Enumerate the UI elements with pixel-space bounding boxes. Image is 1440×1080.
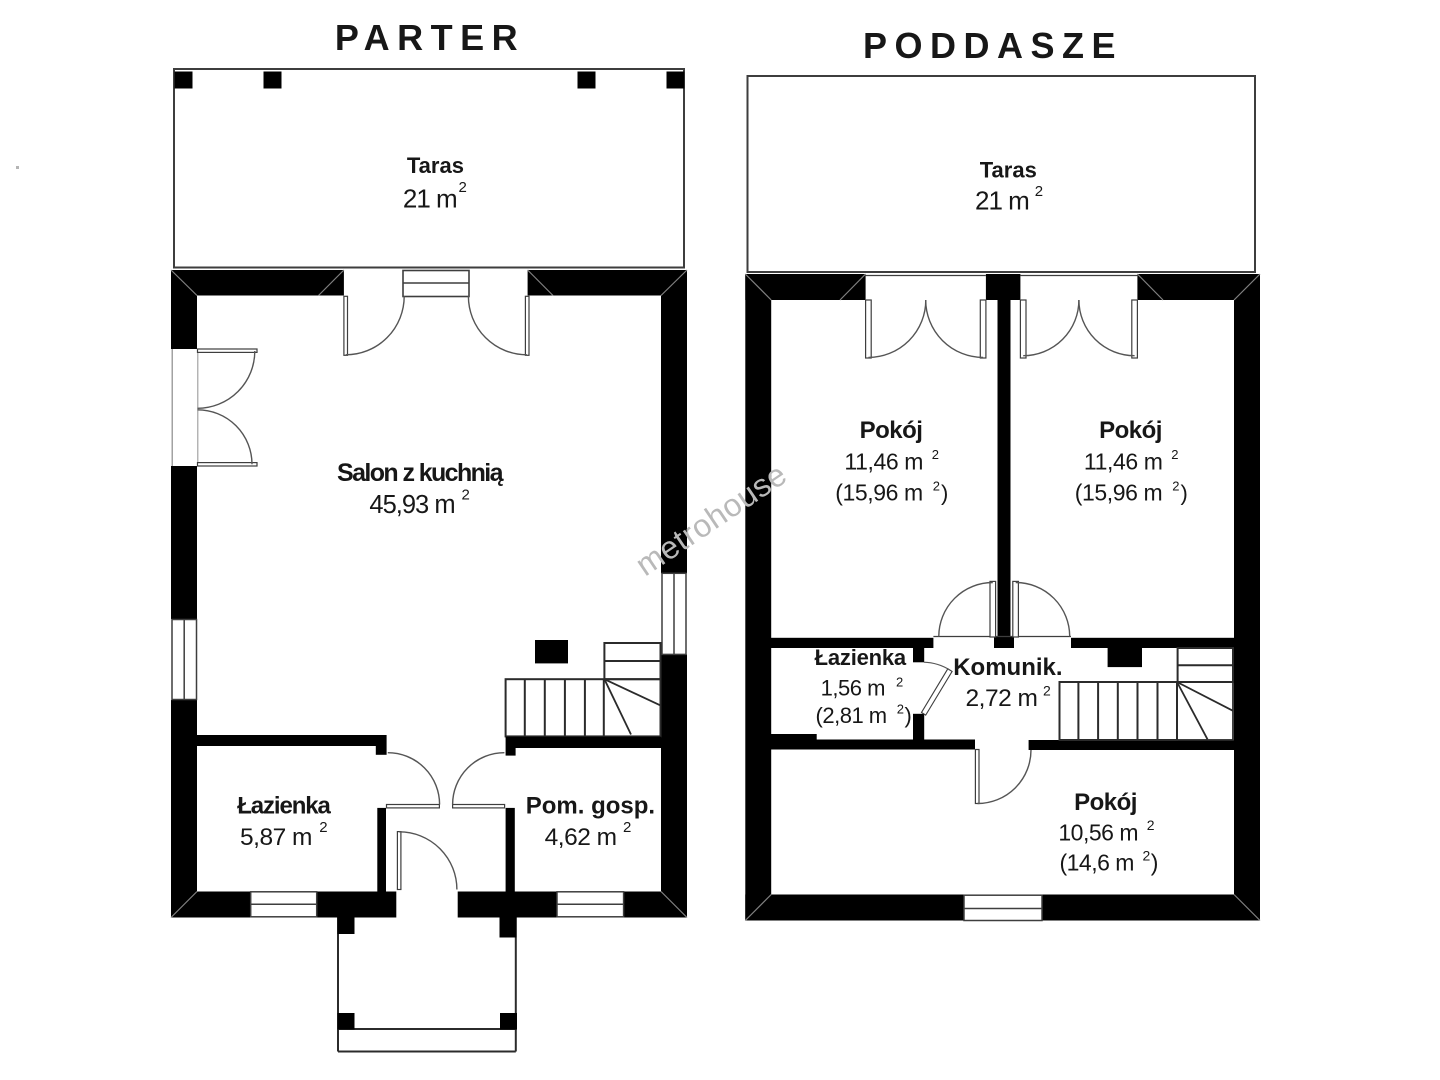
svg-text:2: 2	[897, 702, 904, 717]
svg-text:2: 2	[1147, 817, 1155, 833]
svg-text:1,56 m: 1,56 m	[821, 676, 885, 701]
svg-text:Komunik.: Komunik.	[953, 654, 1062, 681]
svg-text:Salon z kuchnią: Salon z kuchnią	[337, 459, 505, 487]
svg-text:2: 2	[932, 447, 939, 462]
svg-text:5,87 m: 5,87 m	[240, 824, 312, 851]
svg-text:Pokój: Pokój	[1099, 417, 1162, 444]
svg-text:11,46 m: 11,46 m	[1084, 448, 1163, 474]
svg-text:Pokój: Pokój	[1074, 789, 1137, 816]
svg-text:): )	[1181, 480, 1188, 505]
svg-text:Łazienka: Łazienka	[237, 793, 331, 820]
svg-text:2: 2	[459, 179, 467, 196]
svg-text:10,56 m: 10,56 m	[1058, 819, 1138, 845]
svg-text:(15,96 m: (15,96 m	[835, 479, 923, 505]
svg-text:Taras: Taras	[407, 153, 464, 178]
svg-text:): )	[941, 480, 948, 505]
svg-text:2: 2	[1043, 683, 1051, 699]
svg-text:2: 2	[462, 487, 470, 504]
svg-text:(2,81 m: (2,81 m	[816, 703, 887, 728]
svg-text:2: 2	[319, 819, 327, 836]
svg-text:2: 2	[623, 819, 631, 836]
svg-text:2,72 m: 2,72 m	[966, 685, 1038, 712]
svg-text:2: 2	[1171, 447, 1178, 462]
svg-text:): )	[905, 703, 912, 728]
svg-text:2: 2	[1035, 183, 1043, 200]
svg-text:PODDASZE: PODDASZE	[863, 25, 1123, 66]
svg-text:45,93 m: 45,93 m	[369, 491, 454, 519]
svg-text:Taras: Taras	[980, 157, 1037, 182]
svg-text:21 m: 21 m	[403, 184, 457, 214]
svg-text:11,46 m: 11,46 m	[844, 448, 923, 474]
svg-text:2: 2	[1143, 848, 1151, 864]
svg-text:Pom. gosp.: Pom. gosp.	[526, 793, 655, 820]
svg-text:(15,96 m: (15,96 m	[1075, 479, 1163, 505]
svg-text:2: 2	[933, 478, 940, 493]
svg-text:Łazienka: Łazienka	[815, 645, 907, 670]
svg-text:2: 2	[1172, 478, 1179, 493]
svg-text:21 m: 21 m	[975, 186, 1029, 216]
svg-text:PARTER: PARTER	[335, 17, 525, 58]
svg-text:4,62 m: 4,62 m	[545, 824, 617, 851]
svg-text:2: 2	[896, 675, 903, 690]
svg-text:): )	[1151, 850, 1159, 876]
svg-text:(14,6 m: (14,6 m	[1059, 850, 1133, 876]
svg-text:Pokój: Pokój	[860, 417, 923, 444]
